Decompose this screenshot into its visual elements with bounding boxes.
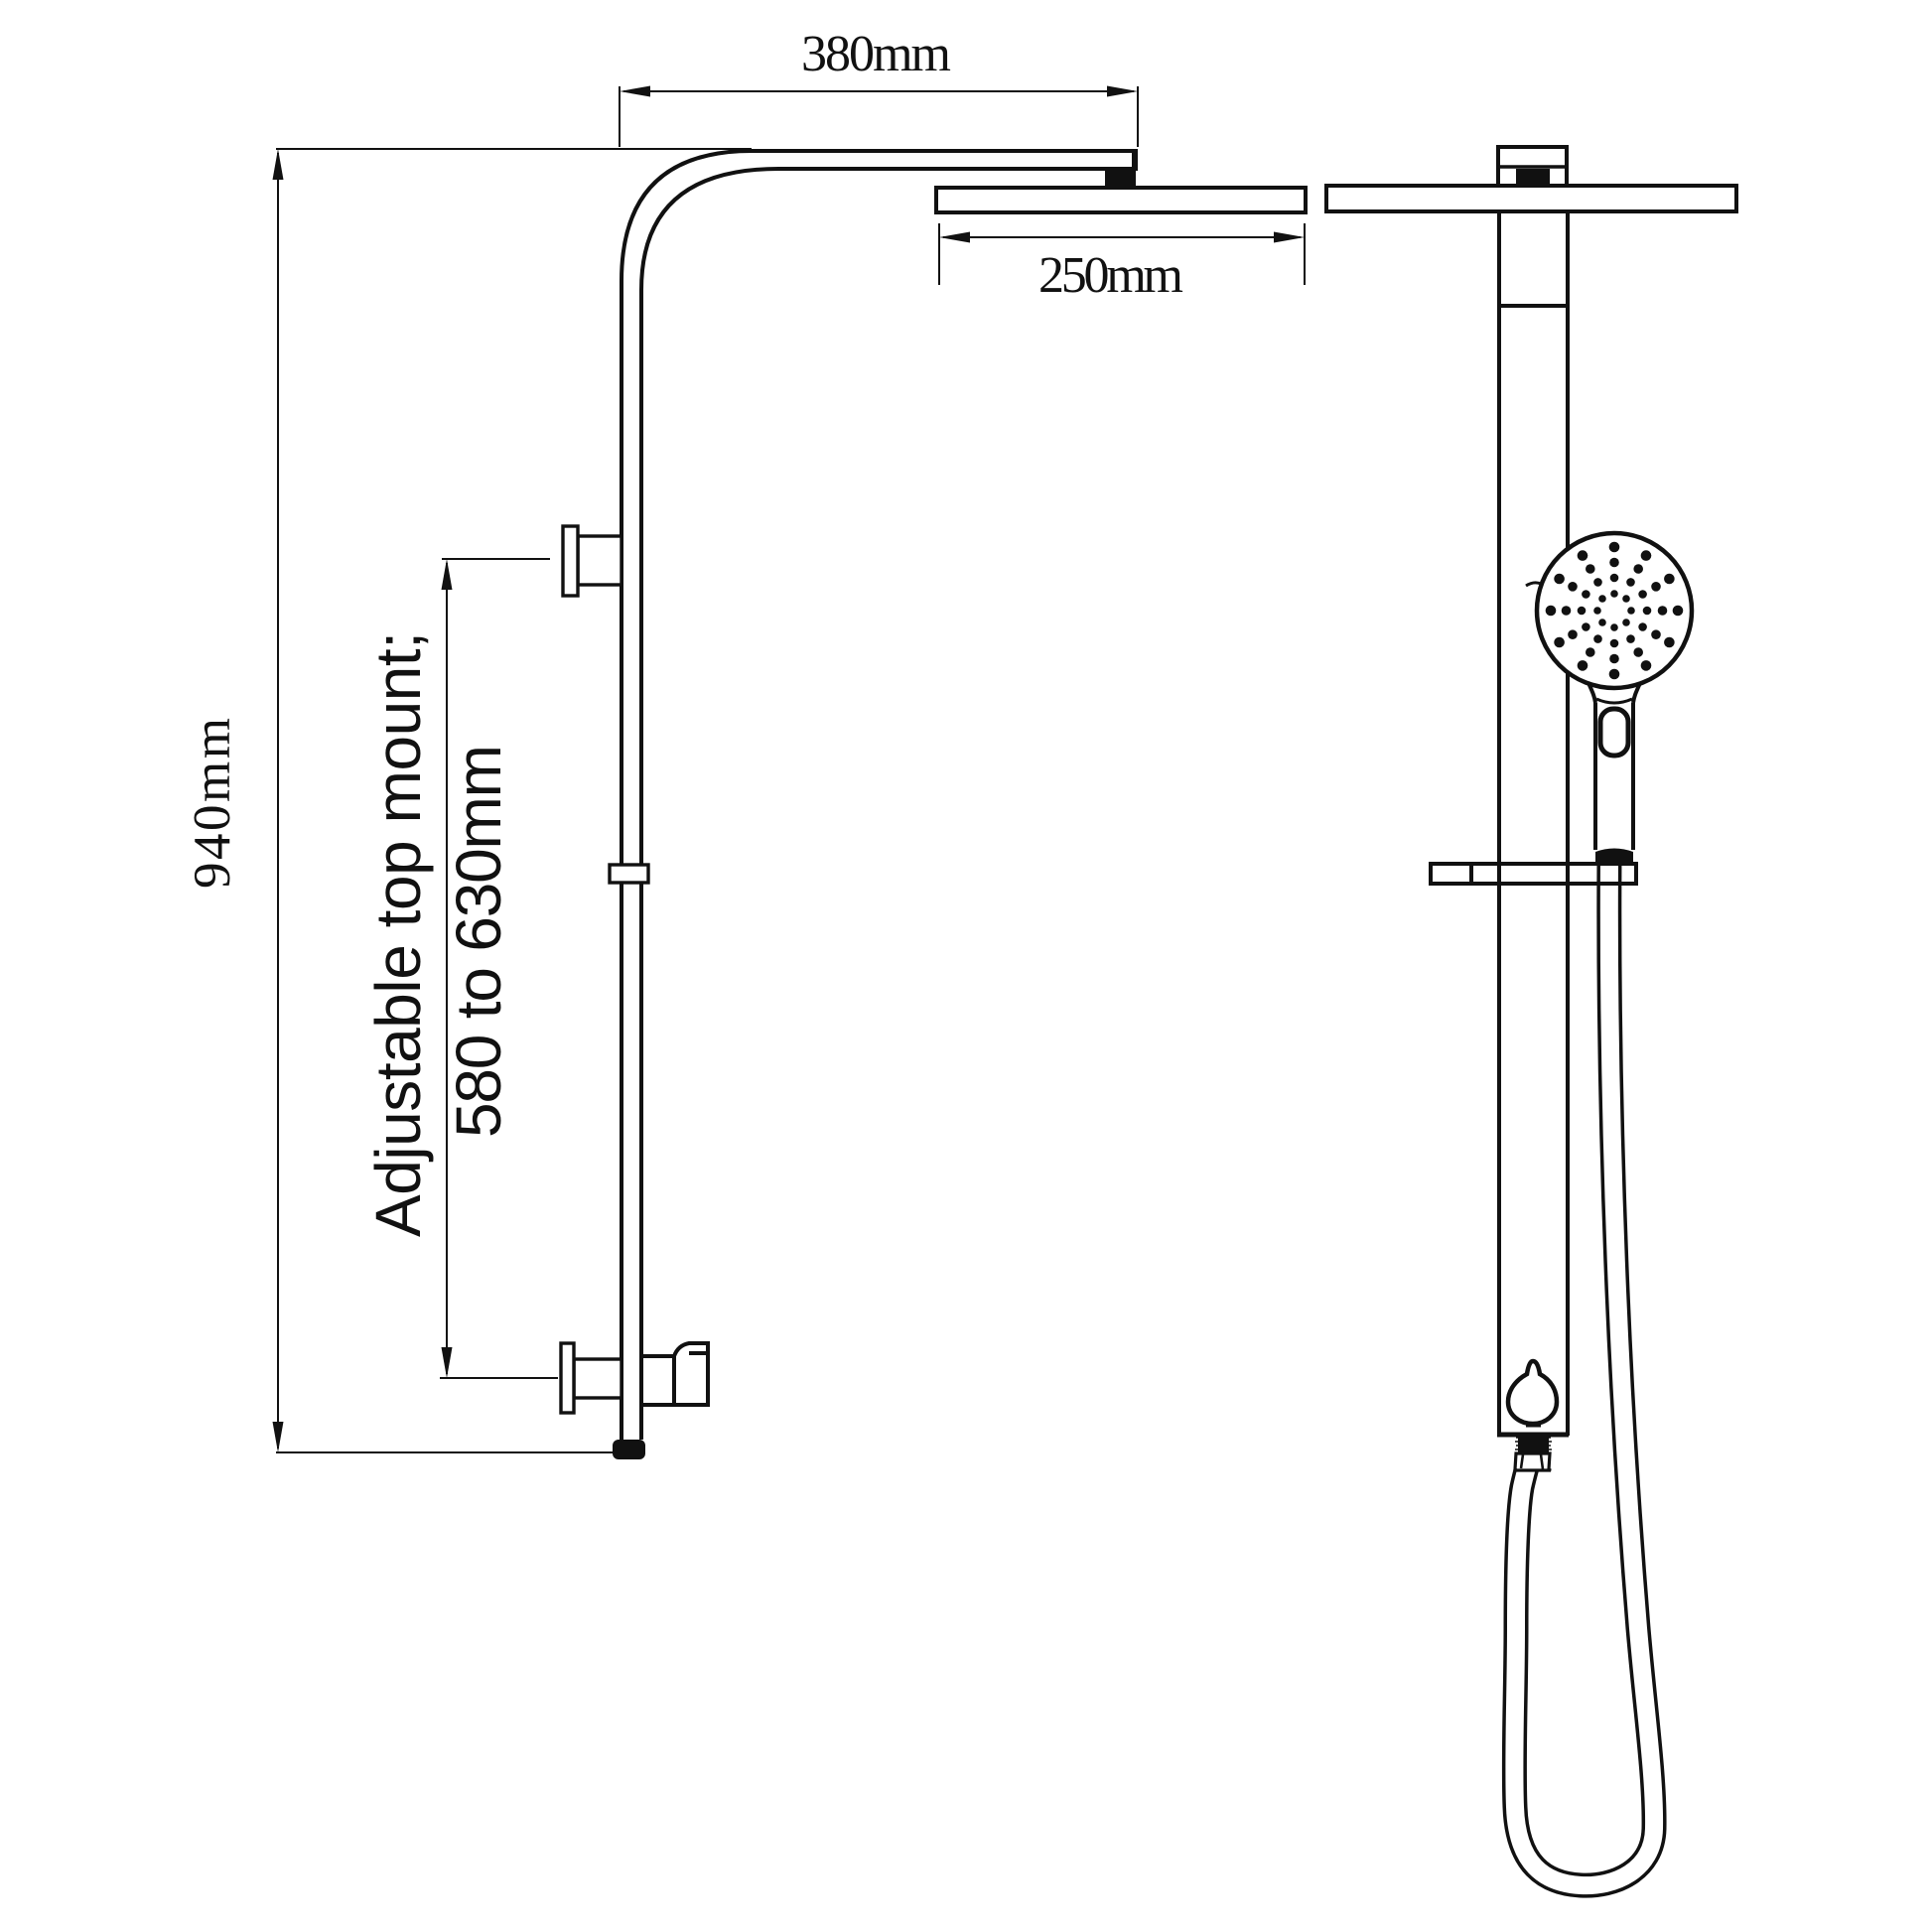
svg-text:Adjustable top mount;: Adjustable top mount; <box>362 631 434 1237</box>
svg-text:380mm: 380mm <box>801 26 951 82</box>
svg-text:580 to 630mm: 580 to 630mm <box>443 745 514 1138</box>
svg-text:250mm: 250mm <box>1038 247 1183 304</box>
